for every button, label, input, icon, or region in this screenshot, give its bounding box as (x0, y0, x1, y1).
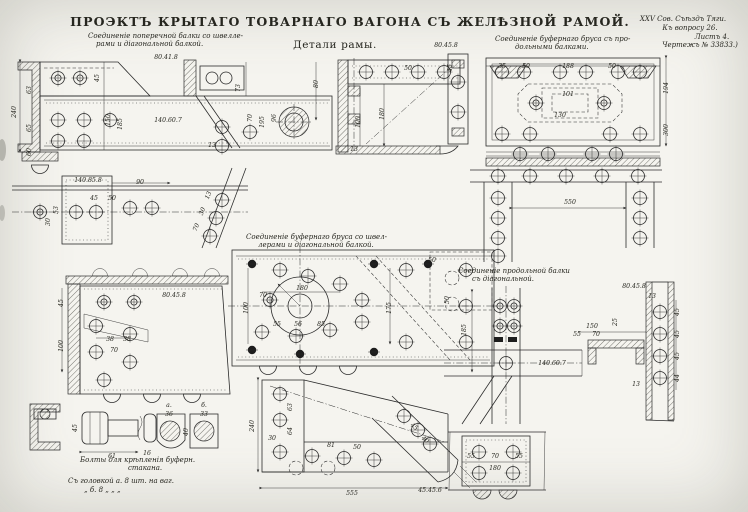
caption-buffer-channel-2: лерами и діагональной балкой. (258, 241, 374, 249)
caption-buffer-channel-1: Соединеніе буфернаго бруса со швел- (246, 233, 388, 241)
dim-label: 35 (498, 63, 506, 70)
dim-label: 44 (674, 374, 681, 383)
dim-label: 81 (327, 442, 335, 449)
dim-label: 70 (110, 347, 118, 354)
caption-buffer-longitudinal-1: Соединеніе буфернаго бруса съ про- (495, 35, 631, 43)
dim-label: 90 (136, 179, 144, 186)
caption-transverse-1: Соединеніе поперечной балки со швелле- (88, 32, 244, 40)
sheet-subtitle: Детали рамы. (293, 39, 377, 51)
dim-label: 188 (562, 63, 574, 70)
dim-label: 140.60.7 (154, 117, 182, 124)
dim-label: 60 (26, 148, 33, 156)
dim-label: 175 (386, 302, 393, 314)
paper-smudges (0, 139, 6, 221)
dim-label: 45 (94, 74, 101, 83)
dim-label: 36 (165, 411, 173, 418)
dim-label: 555 (346, 490, 358, 497)
dim-label: 240 (11, 106, 18, 119)
dim-label: 180 (296, 285, 308, 292)
dim-label: 96 (271, 114, 278, 122)
dim-label: 63 (287, 403, 294, 411)
dim-label: 50 (404, 65, 412, 72)
dim-label: 45 (674, 308, 681, 317)
dim-label: а. (166, 402, 172, 409)
dim-label: 195 (259, 116, 266, 128)
drawing-canvas: 80.41.8140.60.72406365604515018573701959… (0, 0, 748, 512)
bolts-spec-2: „ б. 8 „ „ „ (84, 486, 121, 494)
dim-label: 80.41.8 (154, 54, 178, 61)
dim-label: 56 (294, 321, 302, 328)
dim-label: 50 (428, 257, 436, 264)
dim-label: 65 (26, 124, 33, 132)
bolts-spec-1: Съ головкой а. 8 шт. на ваг. (68, 477, 174, 485)
caption-longitudinal-diagonal-2: съ діагональной. (472, 275, 534, 283)
caption-bolts-1: Болты для крѣпленія буферн. (79, 456, 195, 464)
dim-label: 70 (592, 331, 600, 338)
dim-label: 30 (198, 206, 207, 216)
dim-label: 45 (89, 195, 98, 202)
dim-label: 194 (663, 82, 670, 94)
dim-label: б. (201, 402, 207, 409)
dim-label: 13 (648, 293, 656, 300)
dim-label: 45 (674, 330, 681, 339)
dim-label: 70 (247, 114, 254, 122)
dim-label: 85 (317, 321, 325, 328)
dim-label: 550 (564, 199, 576, 206)
dim-label: 80.45.8 (162, 292, 186, 299)
dim-label: 150 (586, 323, 598, 330)
dim-label: 70 (259, 292, 267, 299)
dim-label: 63 (26, 86, 33, 94)
dim-label: 50 (608, 63, 616, 70)
dim-label: 53 (53, 206, 60, 214)
view-frame-members (470, 168, 662, 265)
dim-label: 100 (355, 116, 362, 128)
view-buffer-longitudinal-plan (448, 54, 666, 166)
dim-label: 33 (200, 411, 208, 418)
dim-label: 130 (554, 112, 566, 119)
corner-note-drawing-number: Чертежъ № 33833.) (662, 41, 738, 49)
dim-label: 45 (58, 299, 65, 308)
dim-label: 25 (612, 318, 619, 327)
dim-label: 30 (268, 435, 276, 442)
dim-label: 185 (461, 324, 468, 336)
corner-note-congress: XXV Сов. Съѣздъ Тяги. (639, 15, 726, 23)
dim-label: 73 (235, 84, 242, 92)
view-stanchion-detail (336, 58, 460, 154)
dim-label: 64 (287, 427, 294, 435)
dim-label: 13 (204, 190, 213, 200)
dim-label: 55 (467, 453, 475, 460)
dim-label: 100 (243, 302, 250, 314)
dim-label: 50 (444, 296, 451, 304)
view-corner-bracket (62, 269, 230, 403)
dim-label: 80.45.8 (622, 283, 646, 290)
dim-label: 140.60.7 (538, 360, 566, 367)
dim-label: 300 (663, 124, 670, 136)
dim-label: 180 (489, 465, 501, 472)
caption-longitudinal-diagonal-1: Соединеніе продольной балки (458, 267, 570, 275)
dim-label: 55 (273, 321, 281, 328)
dim-label: 45.45.6 (417, 487, 442, 494)
dim-label: 80 (313, 80, 320, 88)
dim-label: 101 (562, 91, 574, 98)
dim-label: 80.45.8 (434, 42, 458, 49)
caption-transverse-2: рами и діагональной балкой. (96, 40, 203, 48)
view-buffer-channel-plan (228, 246, 498, 375)
dim-label: 240 (249, 420, 256, 433)
dim-label: 55 (573, 331, 581, 338)
dim-label: 70 (192, 222, 201, 232)
sheet-title: ПРОЭКТЪ КРЫТАГО ТОВАРНАГО ВАГОНА СЪ ЖЕЛѢ… (70, 13, 630, 29)
dim-label: 50 (522, 63, 530, 70)
view-longitudinal-diagonal (444, 286, 582, 424)
view-buffer-bolts-detail (30, 404, 218, 452)
dim-label: 40 (183, 428, 190, 437)
caption-buffer-longitudinal-2: дольными балками. (515, 43, 589, 51)
view-beam-end-plate (12, 168, 248, 248)
dim-label: 45 (408, 421, 419, 432)
dim-label: 185 (117, 118, 124, 130)
dim-label: 140.85.8 (74, 177, 102, 184)
dim-label: 30 (45, 218, 52, 226)
dim-label: 180 (379, 108, 386, 120)
view-channel-sections (578, 282, 676, 421)
dim-label: 45 (72, 424, 79, 433)
dim-label: 45 (447, 64, 454, 73)
dim-label: 50 (108, 195, 116, 202)
dim-label: 38 (123, 336, 131, 343)
dim-label: 150 (105, 114, 112, 126)
dim-label: 70 (491, 453, 499, 460)
dim-label: 13 (632, 381, 640, 388)
dim-label: 13 (208, 142, 216, 149)
corner-note-list: Листъ 4. (694, 33, 729, 41)
dim-label: 100 (58, 340, 65, 352)
drawing-sheet: 80.41.8140.60.72406365604515018573701959… (0, 0, 748, 512)
dim-label: 13 (350, 146, 358, 153)
caption-bolts-2: стакана. (128, 464, 162, 472)
corner-note-question: Къ вопросу 26. (661, 24, 717, 32)
dim-label: 50 (353, 444, 361, 451)
dim-label: 55 (515, 453, 523, 460)
dim-label: 45 (674, 352, 681, 361)
dim-label: 38 (106, 336, 114, 343)
